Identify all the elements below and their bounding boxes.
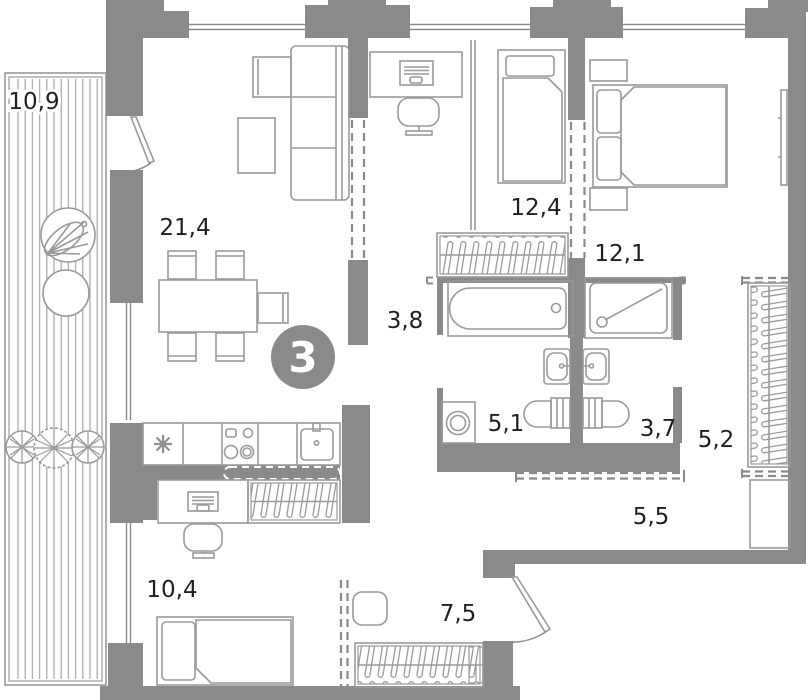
wardrobe-rail	[355, 643, 483, 687]
room-label-shower-room: 3,7	[640, 416, 677, 442]
floor-plan-page: 10,9 21,4 3,8 12,4 12,1 5,1 3,7 5,2 5,5 …	[0, 0, 808, 700]
monitor-icon	[400, 61, 433, 85]
bed-single	[157, 617, 293, 685]
partition-wall	[471, 40, 475, 230]
sofa	[253, 46, 349, 200]
window	[188, 25, 305, 30]
optional-partitions	[341, 120, 788, 686]
room-label-living: 21,4	[159, 215, 210, 241]
toilet-icon	[524, 398, 570, 428]
window	[410, 25, 530, 30]
sink-icon	[544, 349, 570, 384]
wardrobe-rail	[248, 480, 340, 523]
dining-table	[159, 280, 257, 332]
bed-double	[590, 60, 727, 210]
monitor-icon	[188, 492, 218, 511]
entrance-door	[505, 577, 550, 642]
wardrobe-rail	[748, 283, 790, 467]
nightstand	[590, 188, 627, 210]
room-label-entry-hall: 7,5	[440, 601, 477, 627]
room-label-balcony: 10,9	[8, 89, 59, 115]
fridge-icon	[154, 435, 172, 453]
towel-radiator-icon	[778, 90, 787, 185]
window	[623, 25, 745, 30]
sink-icon	[583, 349, 609, 384]
room-label-wardrobe-area: 5,2	[698, 427, 735, 453]
room-label-bedroom-3: 10,4	[146, 577, 197, 603]
window	[127, 523, 131, 645]
bed-single-2	[498, 50, 565, 183]
floor-plan: 10,9 21,4 3,8 12,4 12,1 5,1 3,7 5,2 5,5 …	[0, 0, 808, 700]
rooms-count-value: 3	[288, 333, 317, 382]
plant-icon	[34, 428, 74, 468]
rooms-count-badge: 3	[271, 325, 335, 389]
shower-tray-icon	[585, 278, 672, 338]
desk	[370, 52, 462, 97]
washing-machine-icon	[442, 402, 475, 443]
room-label-nook: 3,8	[387, 308, 424, 334]
pouf	[353, 592, 387, 625]
desk-2	[158, 480, 248, 523]
balcony-decking	[12, 79, 102, 679]
desk-chair	[398, 98, 439, 135]
coffee-table	[238, 118, 275, 173]
room-label-hallway: 5,5	[633, 504, 670, 530]
room-label-bedroom-2: 12,1	[594, 241, 645, 267]
bathtub-icon	[448, 281, 573, 336]
dining-set	[159, 251, 288, 361]
desk-chair-2	[184, 524, 222, 558]
kitchen-counter	[143, 423, 340, 465]
toilet-icon	[583, 398, 629, 428]
room-label-bathroom: 5,1	[488, 411, 525, 437]
balcony-door	[131, 117, 154, 171]
balcony-zone	[5, 73, 106, 685]
window	[127, 303, 131, 420]
cabinet	[750, 480, 790, 548]
nightstand	[590, 60, 627, 81]
plant-icon	[72, 431, 104, 463]
room-label-bedroom-1: 12,4	[510, 195, 561, 221]
plant-icon	[6, 431, 38, 463]
wardrobe-rail	[437, 233, 568, 277]
outdoor-table-2-icon	[43, 270, 89, 316]
